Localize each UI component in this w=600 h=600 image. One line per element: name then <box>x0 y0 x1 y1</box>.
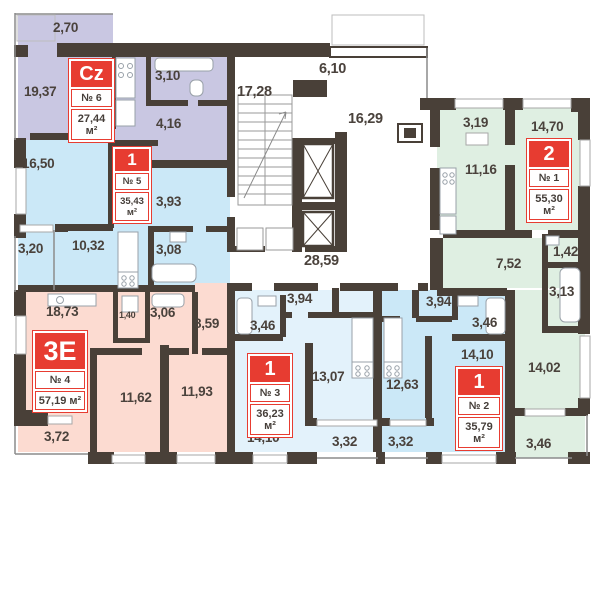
apartment-area: 36,23 м² <box>250 404 290 435</box>
apt4-bath-dim: 3,06 <box>150 305 175 320</box>
apartment-area: 35,79 м² <box>458 417 500 448</box>
stairs-icon <box>237 95 293 250</box>
apt4-kitchen-dim: 18,73 <box>46 304 78 319</box>
apt2-bath-dim: 3,46 <box>472 315 497 330</box>
apt5-kitchen-dim: 10,32 <box>72 238 104 253</box>
apartment-area: 55,30 м² <box>529 189 569 220</box>
apartment-4-entry-region <box>195 283 230 292</box>
apt6-bath-dim: 3,10 <box>155 68 180 83</box>
apartment-number: № 2 <box>458 397 500 415</box>
apartment-area: 35,43 м² <box>115 192 149 221</box>
apt3-hall-dim: 3,94 <box>287 291 312 306</box>
apt2-living-dim: 14,10 <box>461 347 493 362</box>
corridor-upper-dim: 6,10 <box>319 61 346 77</box>
apt5-balcony-dim: 3,20 <box>18 241 43 256</box>
apt5-hall-dim: 3,93 <box>156 194 181 209</box>
apt1-niche-dim: 3,19 <box>463 115 488 130</box>
apartment-card-3[interactable]: 1 № 3 36,23 м² <box>247 353 293 438</box>
corridor-main-dim: 28,59 <box>304 253 339 269</box>
apt5-bath-dim: 3,08 <box>156 242 181 257</box>
apt3-balcony-dim: 3,32 <box>332 434 357 449</box>
apartment-number: № 5 <box>115 173 149 190</box>
apt2-hall-dim: 3,94 <box>426 294 451 309</box>
apartment-card-6[interactable]: Cz № 6 27,44 м² <box>68 58 115 143</box>
apt4-closet-dim: 1,40 <box>119 310 135 320</box>
apt2-kitchen-dim: 12,63 <box>386 377 418 392</box>
apartment-type-label: Cz <box>71 61 112 87</box>
apartment-number: № 4 <box>35 371 85 389</box>
trash-chute-icon <box>398 124 422 142</box>
apt5-living-dim: 16,50 <box>22 156 54 171</box>
apartment-area: 27,44 м² <box>71 109 112 140</box>
apt1-balcony-dim: 3,46 <box>526 436 551 451</box>
apartment-card-1[interactable]: 2 № 1 55,30 м² <box>526 138 572 223</box>
apartment-type-label: 1 <box>250 356 290 382</box>
apt3-kitchen-dim: 13,07 <box>312 369 344 384</box>
apt1-bedroom-dim: 14,70 <box>531 119 563 134</box>
apartment-type-label: 2 <box>529 141 569 167</box>
apartment-card-4[interactable]: 3E № 4 57,19 м² <box>32 330 88 413</box>
apartment-number: № 1 <box>529 169 569 187</box>
apt2-balcony-dim: 3,32 <box>388 434 413 449</box>
apt4-hall-dim: 8,59 <box>194 316 219 331</box>
apt1-room-dim: 14,02 <box>528 360 560 375</box>
apartment-area: 57,19 м² <box>35 391 85 410</box>
apt6-balcony-dim: 2,70 <box>53 20 78 35</box>
apt3-bath-dim: 3,46 <box>250 318 275 333</box>
apartment-number: № 3 <box>250 384 290 402</box>
apartment-number: № 6 <box>71 89 112 107</box>
apartment-type-label: 1 <box>458 369 500 395</box>
apt1-hall-dim: 7,52 <box>496 256 521 271</box>
apt1-living-dim: 11,16 <box>465 162 497 177</box>
apt6-hall-dim: 4,16 <box>156 116 181 131</box>
lobby-dim: 16,29 <box>348 111 383 127</box>
apt4-bedroom1-dim: 11,62 <box>120 390 152 405</box>
apartment-card-2[interactable]: 1 № 2 35,79 м² <box>455 366 503 451</box>
apartment-type-label: 1 <box>115 149 149 171</box>
apartment-6-hall-region <box>150 143 230 166</box>
apartment-type-label: 3E <box>35 333 85 369</box>
apartment-1-south-region <box>510 290 585 415</box>
apt6-living-dim: 19,37 <box>24 84 56 99</box>
apt1-storage-dim: 1,42 <box>553 244 578 259</box>
apartment-card-5[interactable]: 1 № 5 35,43 м² <box>112 146 152 224</box>
elevator-icons <box>303 144 333 246</box>
apt1-bath-dim: 3,13 <box>549 284 574 299</box>
apt4-bedroom2-dim: 11,93 <box>181 384 213 399</box>
floor-plan: 2,70 19,37 3,10 4,16 16,50 3,93 3,20 10,… <box>0 0 600 600</box>
stairwell-dim: 17,28 <box>237 84 272 100</box>
apt4-balcony-dim: 3,72 <box>44 429 69 444</box>
